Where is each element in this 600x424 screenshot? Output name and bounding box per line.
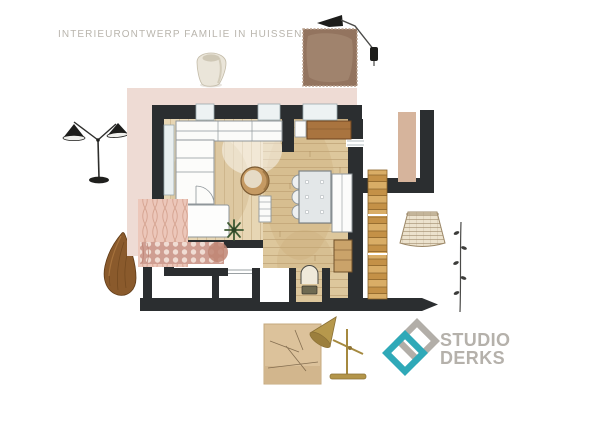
paint-swatch-beige [398,112,416,182]
drawer-cabinet [334,240,352,272]
branch-sketch [453,222,468,312]
presentation-board: INTERIEURONTWERP FAMILIE IN HUISSEN [0,0,600,424]
dining-table [292,171,331,223]
slatted-bench [259,196,271,222]
honeycomb-rug-swatch [140,242,228,264]
logo-mark [387,323,436,372]
rattan-basket-sketch [398,208,448,252]
wooden-ladder [368,170,387,299]
sideboard [307,121,351,139]
plant [225,220,243,240]
coffee-table [241,167,269,195]
logo-line-2: DERKS [440,349,510,367]
hall-floor [260,268,289,302]
toilet [296,266,322,303]
velvet-fabric-swatch [303,29,357,86]
wardrobe [176,140,214,204]
floor-lamp-photo [63,122,128,183]
ceramic-vase-photo [197,53,226,88]
dining-cabinet [332,174,352,232]
logo-line-1: STUDIO [440,331,510,349]
logo-wordmark: STUDIO DERKS [440,331,510,367]
